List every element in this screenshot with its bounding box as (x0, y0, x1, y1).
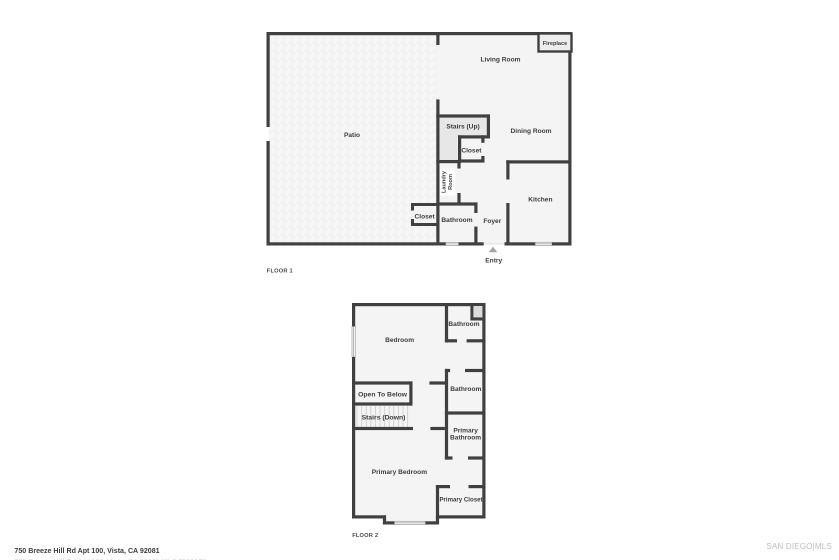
svg-text:FLOOR 2: FLOOR 2 (352, 533, 378, 539)
svg-text:Living Room: Living Room (481, 56, 521, 63)
svg-text:Closet: Closet (415, 214, 436, 221)
svg-text:Primary Bedroom: Primary Bedroom (372, 469, 427, 476)
svg-text:Closet: Closet (461, 147, 482, 154)
svg-text:Laundry: Laundry (441, 170, 447, 193)
svg-text:Bathroom: Bathroom (450, 435, 481, 442)
svg-text:Patio: Patio (344, 132, 360, 139)
svg-text:Bathroom: Bathroom (450, 386, 481, 393)
svg-text:Primary Closet: Primary Closet (439, 496, 482, 503)
svg-text:Bedroom: Bedroom (385, 337, 414, 344)
svg-text:Open To Below: Open To Below (358, 392, 408, 399)
svg-text:Entry: Entry (485, 258, 502, 265)
svg-text:Kitchen: Kitchen (528, 197, 552, 204)
svg-text:FLOOR 1: FLOOR 1 (267, 268, 293, 274)
svg-text:Foyer: Foyer (483, 218, 501, 225)
svg-text:SAN DIEGO|MLS: SAN DIEGO|MLS (766, 542, 832, 551)
svg-text:750 Breeze Hill Rd Apt 100, Vi: 750 Breeze Hill Rd Apt 100, Vista, CA 92… (14, 547, 159, 555)
svg-text:Bathroom: Bathroom (441, 217, 472, 224)
svg-text:Room: Room (448, 174, 454, 190)
svg-text:Primary: Primary (453, 428, 478, 435)
svg-text:Bathroom: Bathroom (448, 321, 479, 328)
svg-text:Stairs (Down): Stairs (Down) (362, 415, 406, 422)
svg-text:Fireplace: Fireplace (543, 41, 568, 47)
svg-text:Dining Room: Dining Room (510, 128, 551, 135)
svg-text:Stairs (Up): Stairs (Up) (446, 123, 479, 130)
